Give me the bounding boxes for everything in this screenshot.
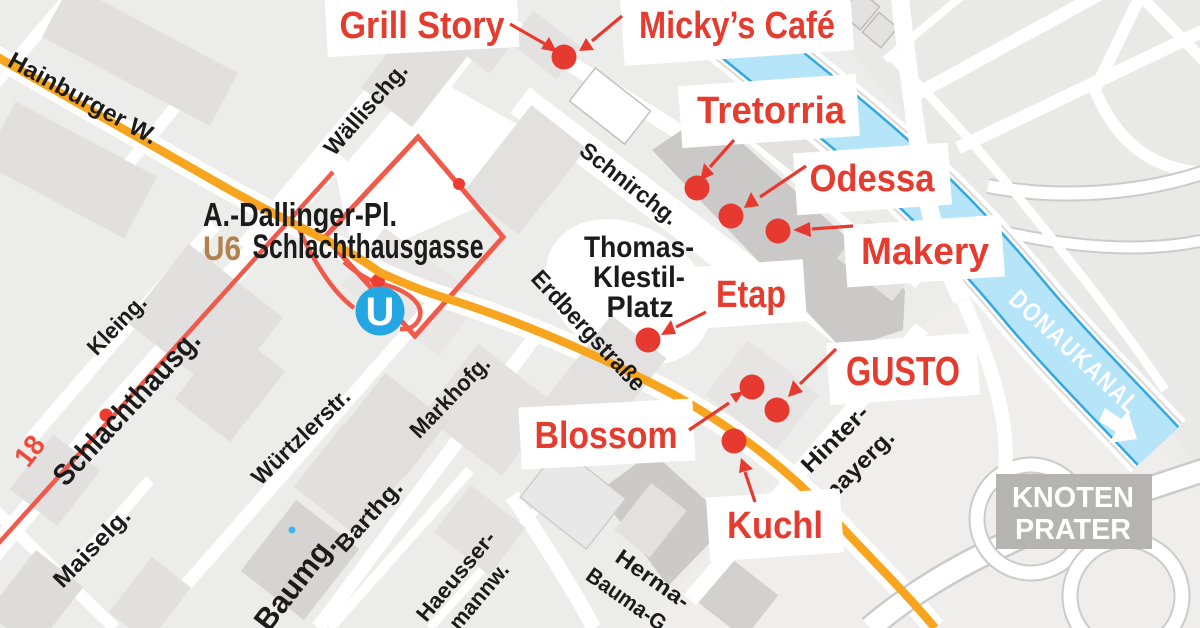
svg-text:Blossom: Blossom bbox=[535, 415, 678, 457]
svg-text:Grill Story: Grill Story bbox=[340, 5, 505, 47]
svg-text:Platz: Platz bbox=[607, 291, 674, 324]
svg-text:U6: U6 bbox=[203, 230, 241, 268]
svg-text:U: U bbox=[366, 290, 395, 334]
svg-text:Kuchl: Kuchl bbox=[727, 505, 823, 547]
svg-text:Micky’s Café: Micky’s Café bbox=[639, 5, 835, 47]
svg-text:KNOTEN: KNOTEN bbox=[1012, 482, 1134, 514]
svg-text:Odessa: Odessa bbox=[810, 158, 936, 200]
svg-text:Klestil-: Klestil- bbox=[593, 261, 685, 294]
svg-text:Makery: Makery bbox=[861, 231, 989, 273]
svg-text:PRATER: PRATER bbox=[1015, 514, 1131, 546]
svg-text:Schlachthausgasse: Schlachthausgasse bbox=[253, 228, 484, 266]
svg-text:Thomas-: Thomas- bbox=[584, 231, 694, 264]
svg-text:Etap: Etap bbox=[716, 274, 786, 316]
svg-text:Tretorria: Tretorria bbox=[697, 90, 846, 132]
svg-text:GUSTO: GUSTO bbox=[846, 348, 960, 394]
